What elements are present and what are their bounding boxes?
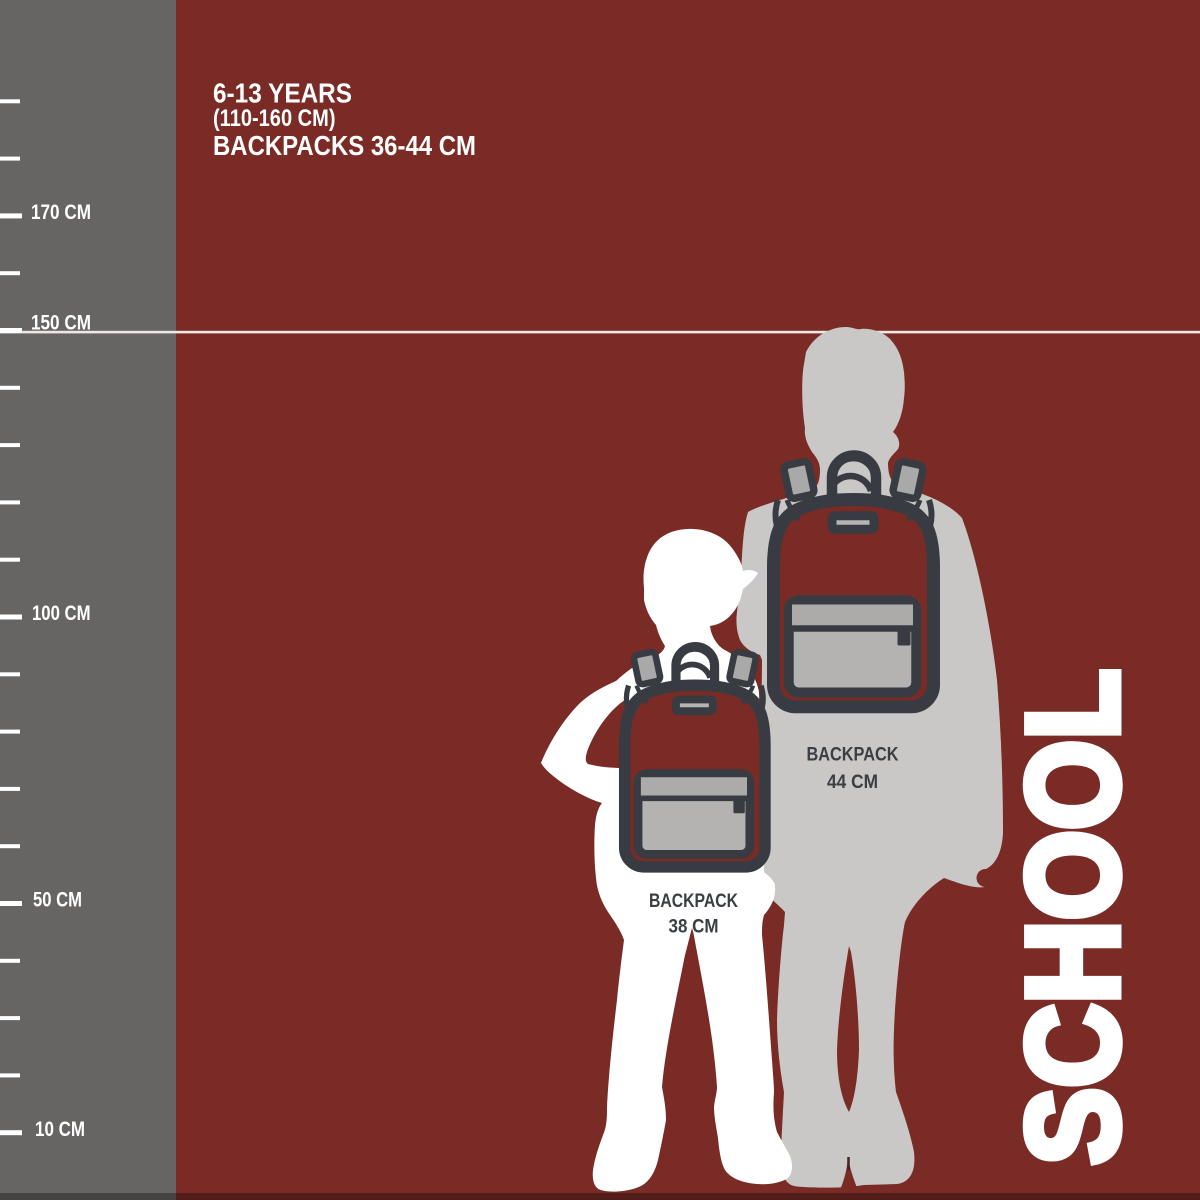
svg-text:BACKPACK: BACKPACK	[649, 890, 738, 912]
svg-text:SCHOOL: SCHOOL	[1000, 669, 1146, 1165]
svg-text:100 CM: 100 CM	[32, 601, 91, 625]
svg-text:10 CM: 10 CM	[35, 1117, 85, 1141]
svg-text:150 CM: 150 CM	[31, 311, 91, 335]
svg-text:44 CM: 44 CM	[827, 771, 878, 793]
svg-text:50 CM: 50 CM	[33, 888, 82, 912]
svg-text:6-13 YEARS: 6-13 YEARS	[213, 78, 352, 109]
svg-text:170 CM: 170 CM	[31, 200, 91, 224]
svg-text:BACKPACKS 36-44 CM: BACKPACKS 36-44 CM	[213, 130, 476, 161]
svg-text:BACKPACK: BACKPACK	[807, 744, 899, 766]
svg-text:38 CM: 38 CM	[669, 916, 719, 938]
svg-text:(110-160 CM): (110-160 CM)	[213, 105, 336, 132]
